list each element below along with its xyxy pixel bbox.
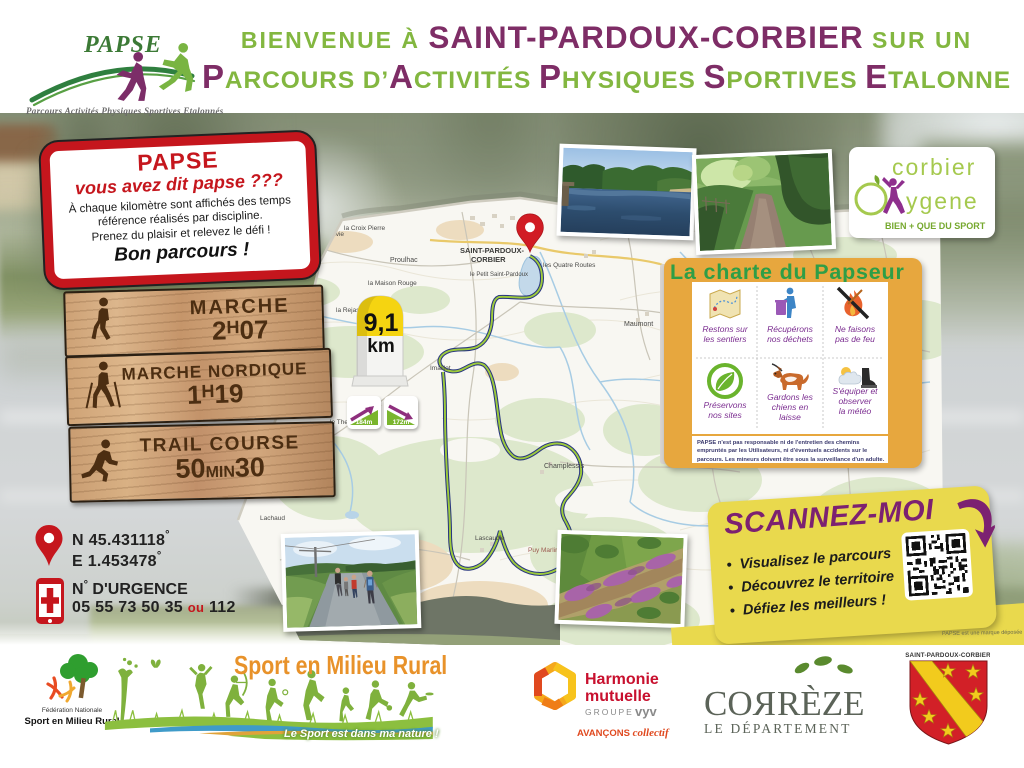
svg-text:chiens en: chiens en	[772, 402, 809, 412]
svg-text:RÈZE: RÈZE	[777, 684, 864, 723]
svg-text:Récupérons: Récupérons	[767, 324, 814, 334]
svg-text:Préservons: Préservons	[704, 400, 748, 410]
svg-text:PAPSE: PAPSE	[83, 32, 162, 58]
svg-text:172m: 172m	[393, 419, 410, 426]
svg-text:laisse: laisse	[779, 412, 801, 422]
svg-text:km: km	[367, 336, 394, 357]
svg-text:ygene: ygene	[906, 188, 979, 214]
svg-text:vyv: vyv	[635, 704, 657, 719]
svg-text:Fédération Nationale: Fédération Nationale	[42, 707, 103, 714]
svg-text:CO: CO	[704, 684, 753, 723]
svg-text:GROUPE: GROUPE	[585, 707, 634, 717]
svg-text:Ne faisons: Ne faisons	[835, 324, 876, 334]
svg-text:9,1: 9,1	[364, 309, 399, 337]
svg-text:AVANÇONS collectif: AVANÇONS collectif	[577, 727, 670, 739]
svg-text:184m: 184m	[356, 419, 373, 426]
svg-text:nos déchets: nos déchets	[767, 334, 814, 344]
svg-text:Harmonie: Harmonie	[585, 671, 659, 688]
svg-text:corbier: corbier	[892, 154, 976, 180]
svg-text:R: R	[752, 684, 776, 723]
svg-text:les sentiers: les sentiers	[704, 334, 748, 344]
svg-text:Restons sur: Restons sur	[702, 324, 749, 334]
svg-text:Gardons les: Gardons les	[767, 392, 814, 402]
svg-text:LE DÉPARTEMENT: LE DÉPARTEMENT	[704, 721, 852, 736]
svg-text:Parcours Activités Physiques S: Parcours Activités Physiques Sportives E…	[26, 106, 224, 116]
svg-text:BIEN + QUE DU SPORT: BIEN + QUE DU SPORT	[885, 221, 986, 231]
svg-text:mutuelle: mutuelle	[585, 688, 651, 705]
svg-text:la météo: la météo	[839, 406, 872, 416]
svg-text:S'équiper et: S'équiper et	[832, 386, 878, 396]
svg-text:observer: observer	[838, 396, 872, 406]
svg-text:SAINT-PARDOUX-CORBIER: SAINT-PARDOUX-CORBIER	[905, 652, 990, 659]
svg-text:pas de feu: pas de feu	[834, 334, 875, 344]
svg-text:nos sites: nos sites	[708, 410, 742, 420]
